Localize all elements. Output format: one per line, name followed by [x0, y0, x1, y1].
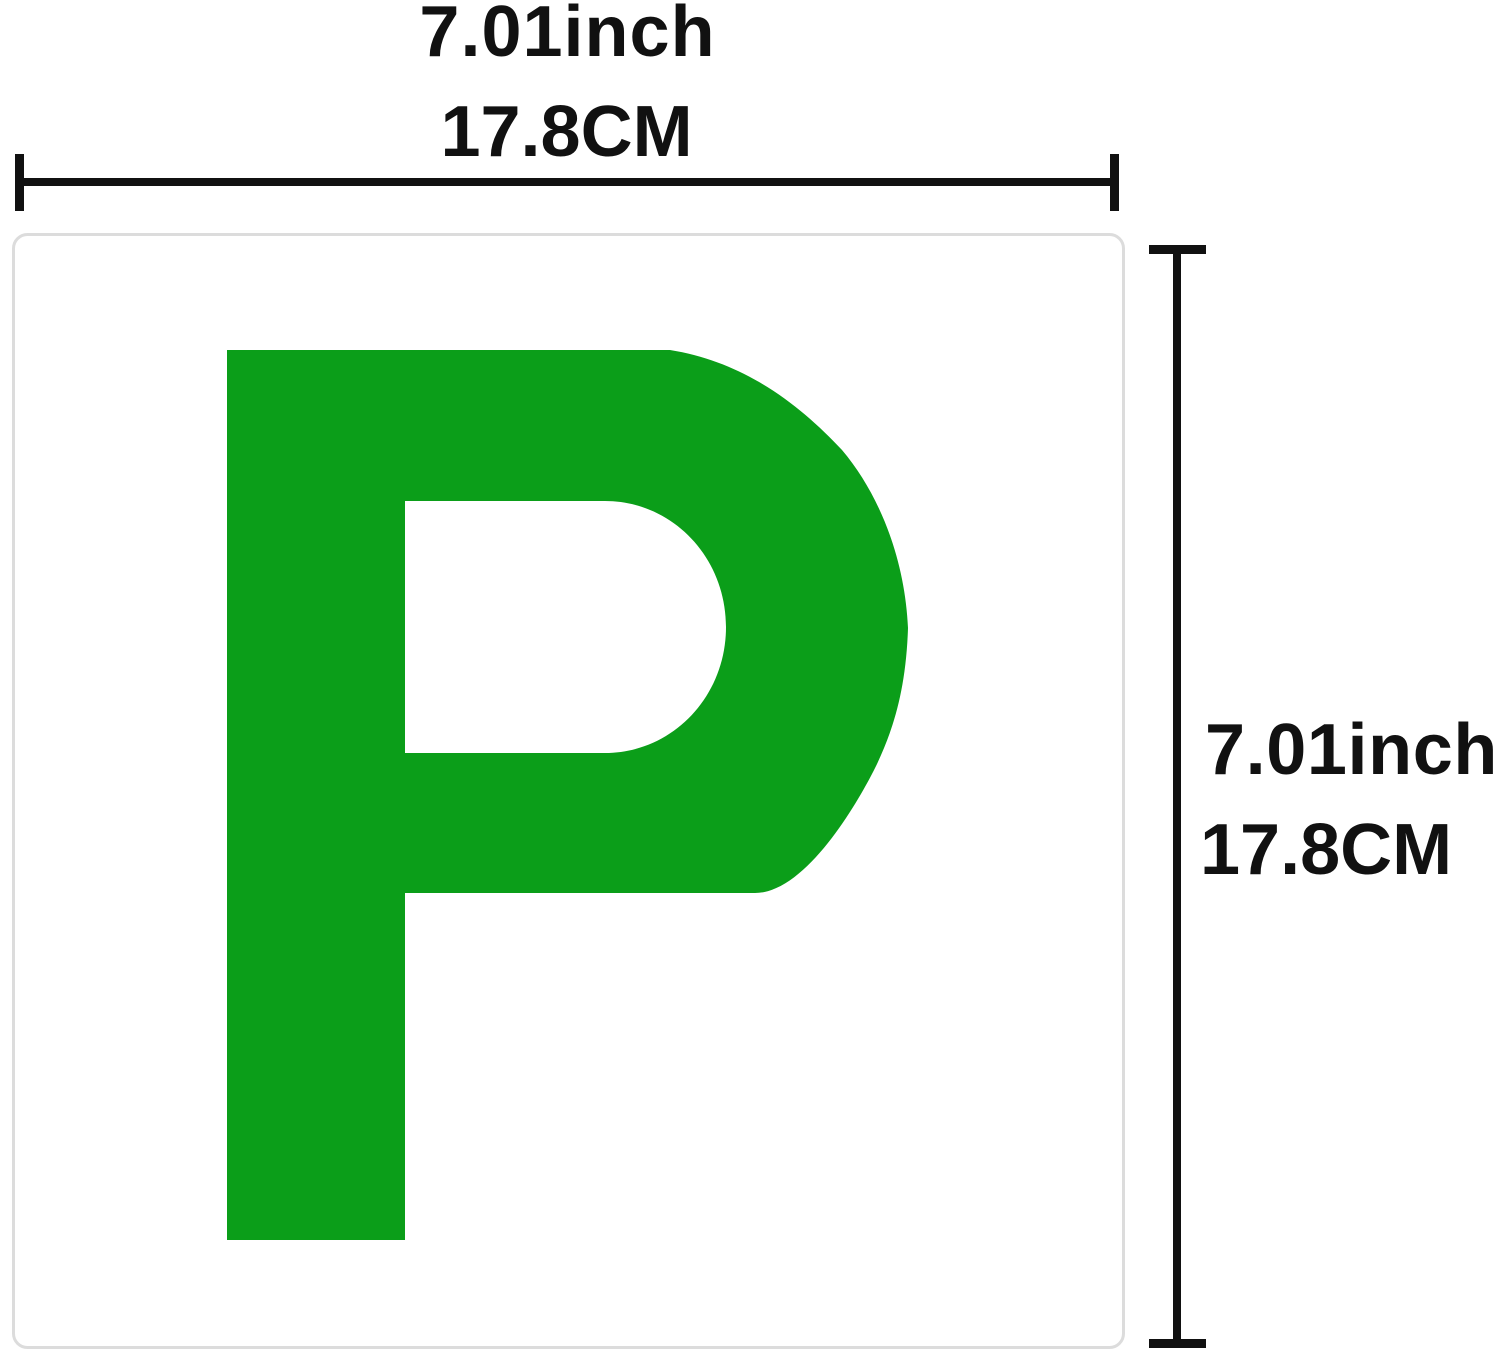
svg-text:17.8CM: 17.8CM — [440, 92, 692, 172]
svg-text:17.8CM: 17.8CM — [1200, 810, 1452, 890]
svg-text:7.01inch: 7.01inch — [419, 0, 715, 72]
svg-text:7.01inch: 7.01inch — [1205, 710, 1498, 790]
